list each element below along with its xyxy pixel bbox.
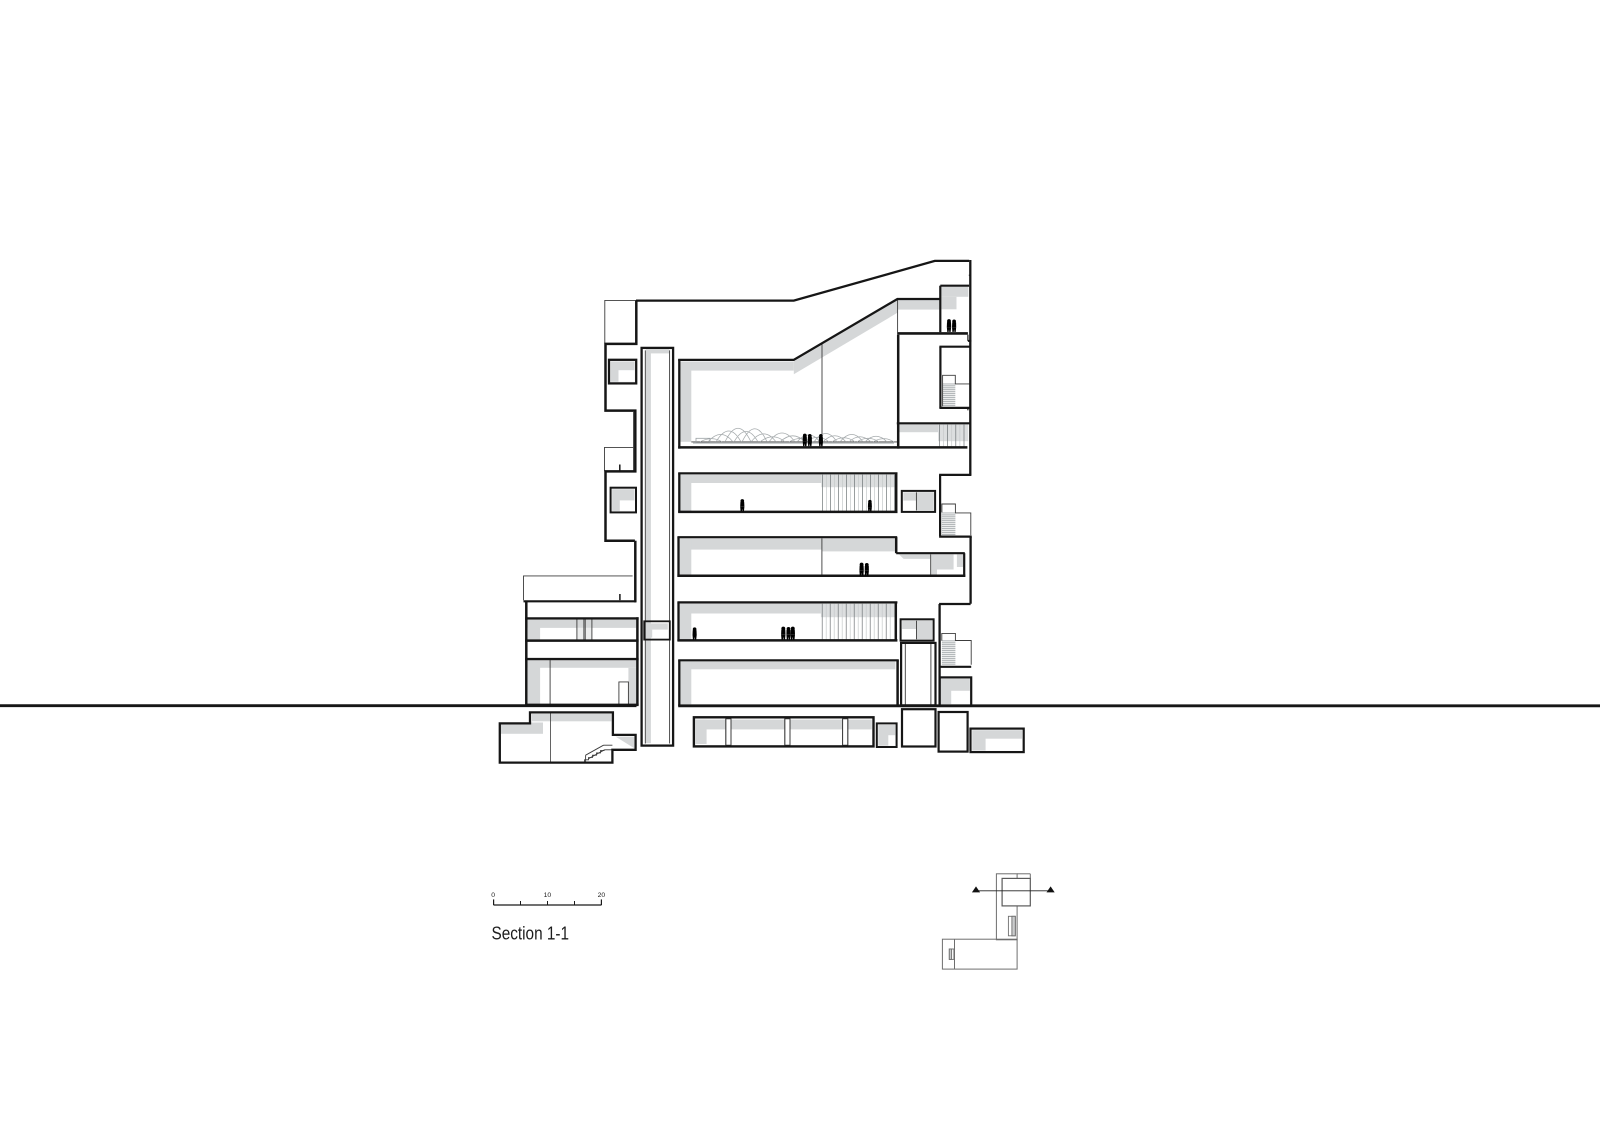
svg-text:0: 0	[491, 892, 495, 899]
svg-text:10: 10	[544, 892, 552, 899]
svg-text:Section 1-1: Section 1-1	[492, 923, 570, 944]
svg-text:20: 20	[598, 892, 606, 899]
